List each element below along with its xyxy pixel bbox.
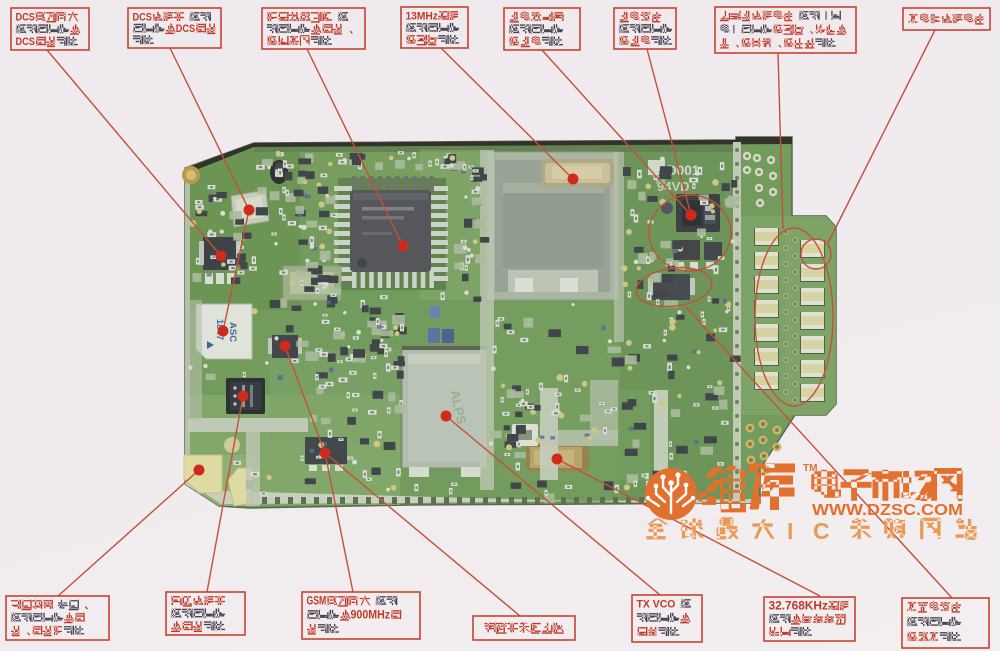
svg-text:WWW.DZSC.COM: WWW.DZSC.COM: [812, 502, 963, 519]
svg-text:13MHz: 13MHz: [406, 10, 439, 22]
svg-text:I: I: [787, 518, 793, 544]
svg-text:DCS: DCS: [16, 36, 36, 48]
svg-text:DCS: DCS: [176, 23, 196, 35]
svg-text:C: C: [813, 518, 830, 544]
svg-text:32.768KHz: 32.768KHz: [769, 600, 829, 613]
svg-text:900MHz: 900MHz: [351, 609, 391, 622]
svg-text:DCS: DCS: [133, 11, 153, 23]
svg-text:GSM: GSM: [307, 595, 327, 608]
svg-text:TX VCO: TX VCO: [637, 598, 676, 610]
svg-text:DCS: DCS: [16, 11, 36, 23]
